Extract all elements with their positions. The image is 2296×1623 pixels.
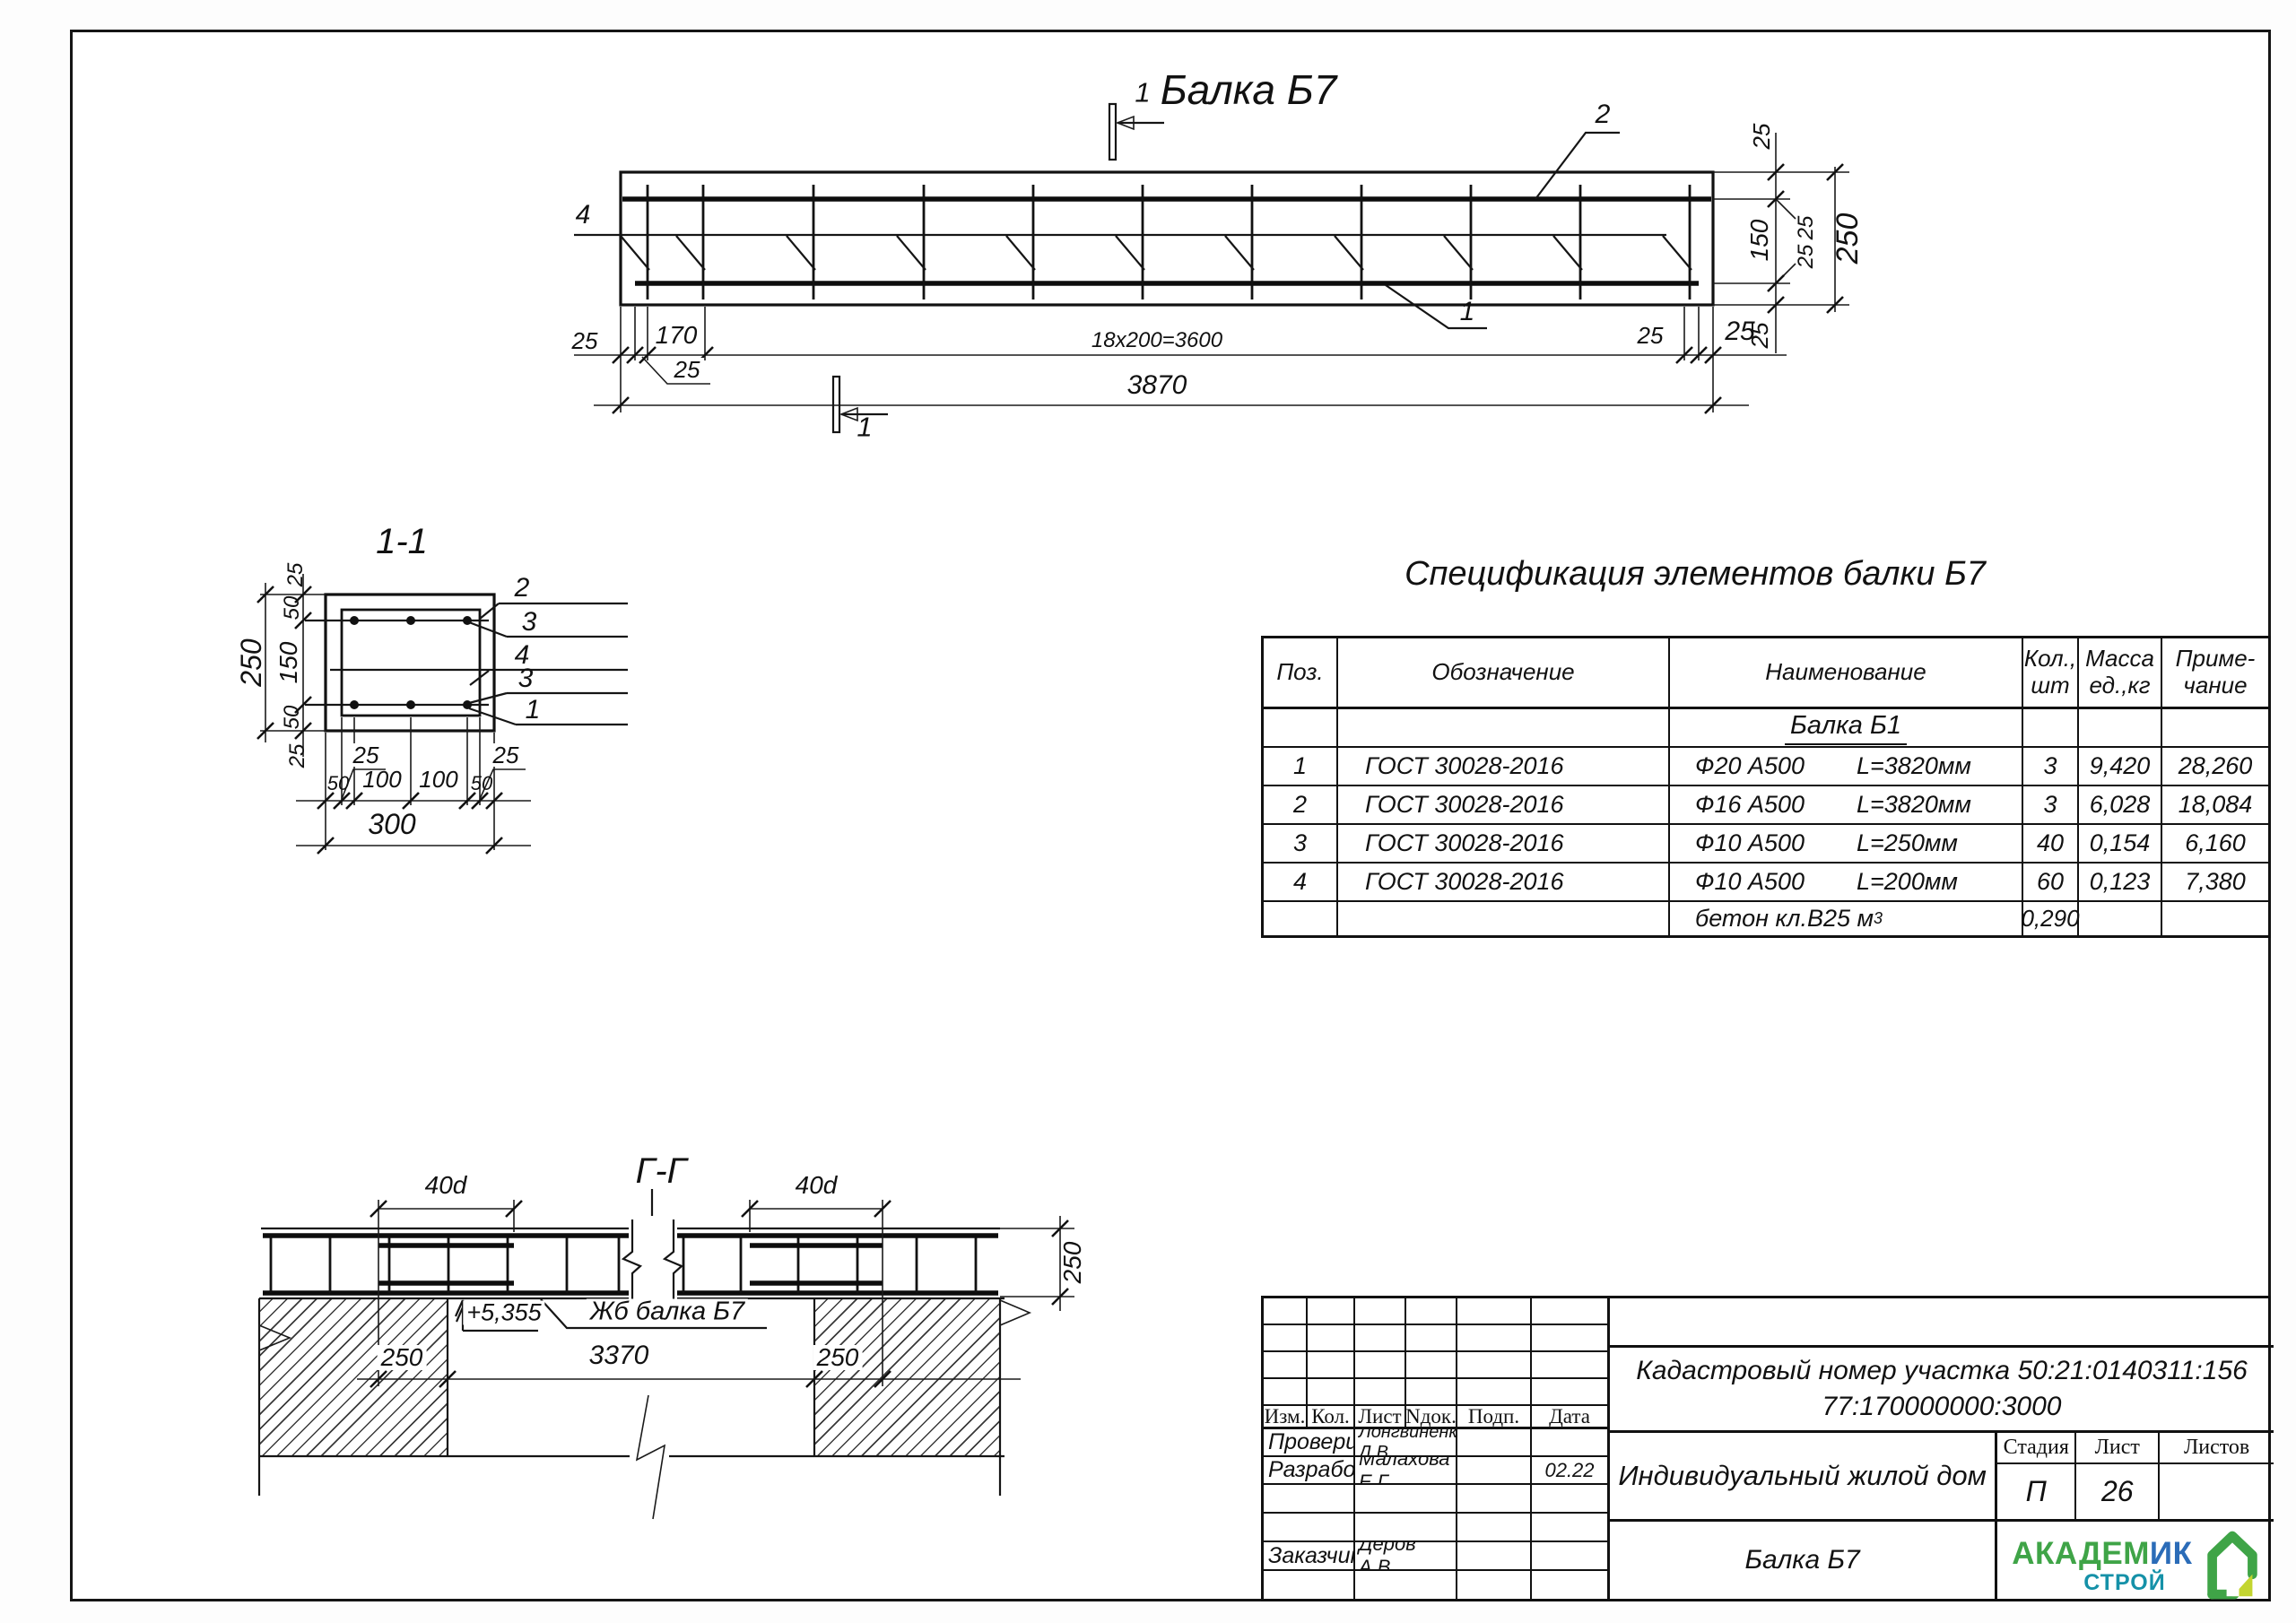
spec-cell xyxy=(1264,902,1338,935)
revision-grid: Изм. Кол. Лист Nдок. Подп. Дата Проверил… xyxy=(1264,1298,1610,1599)
spec-row-mass: 0,154 xyxy=(2079,825,2162,864)
header-list: Лист xyxy=(1355,1406,1406,1429)
stage-label: Стадия xyxy=(1997,1433,2076,1462)
beam-elevation-linework xyxy=(574,104,1849,432)
title-block: Изм. Кол. Лист Nдок. Подп. Дата Проверил… xyxy=(1261,1296,2271,1601)
elevation-title: Балка Б7 xyxy=(1161,69,1337,110)
spec-cell xyxy=(2023,709,2079,748)
spec-concrete-qty: 0,290 xyxy=(2023,902,2079,935)
rdim-25-above: 25 xyxy=(1750,124,1773,150)
spec-row-pos: 2 xyxy=(1264,786,1338,825)
grid-cell xyxy=(1264,1379,1308,1406)
grid-cell xyxy=(1264,1485,1355,1514)
logo-house-icon xyxy=(2204,1529,2261,1601)
stage-sheet-block: Стадия Лист Листов П 26 xyxy=(1997,1433,2274,1519)
grid-cell xyxy=(1406,1352,1457,1379)
s11-50-bot: 50 xyxy=(282,706,303,730)
s11-pos2: 2 xyxy=(515,575,530,602)
cadastral-line2: 77:170000000:3000 xyxy=(1822,1389,2062,1426)
section-mark-bottom-label: 1 xyxy=(857,413,872,441)
s11-pos3a: 3 xyxy=(522,609,537,636)
grid-cell xyxy=(1457,1325,1532,1352)
grid-cell xyxy=(1457,1379,1532,1406)
grid-cell xyxy=(1406,1298,1457,1325)
grid-cell xyxy=(1264,1298,1308,1325)
spec-row-mass: 0,123 xyxy=(2079,864,2162,902)
spec-row-pos: 1 xyxy=(1264,748,1338,786)
rdim-25-bot: 25 xyxy=(1796,245,1817,269)
spec-cell xyxy=(1264,709,1338,748)
spec-cell xyxy=(2162,709,2268,748)
grid-cell xyxy=(1264,1352,1308,1379)
drawing-sheet: Балка Б7 1 1 2 4 1 25 170 25 18x200=3600… xyxy=(0,0,2296,1623)
cadastral-cell: Кадастровый номер участка 50:21:0140311:… xyxy=(1610,1348,2274,1433)
s11-25-bot: 25 xyxy=(287,744,309,768)
spec-row-note: 18,084 xyxy=(2162,786,2268,825)
grid-cell xyxy=(1532,1514,1607,1542)
pos2-label: 2 xyxy=(1596,101,1611,128)
spec-row-name: Ф20 А500L=3820мм xyxy=(1670,748,2023,786)
s11-50-top: 50 xyxy=(282,596,303,621)
grid-cell xyxy=(1355,1325,1406,1352)
dim-25-right: 25 xyxy=(1638,324,1664,347)
s11-b50-right: 50 xyxy=(471,774,492,794)
s11-250: 250 xyxy=(237,638,265,686)
spec-row-designation: ГОСТ 30028-2016 xyxy=(1338,748,1670,786)
sheets-label: Листов xyxy=(2160,1433,2274,1462)
grid-cell xyxy=(1457,1514,1532,1542)
project-name-cell: Индивидуальный жилой дом xyxy=(1610,1433,1997,1519)
gg-250-side: 250 xyxy=(1060,1242,1085,1284)
rdim-150: 150 xyxy=(1747,220,1772,262)
s11-150: 150 xyxy=(276,642,301,684)
spec-cell xyxy=(1338,709,1670,748)
grid-cell xyxy=(1308,1298,1355,1325)
gg-3370: 3370 xyxy=(586,1342,653,1369)
grid-cell xyxy=(1532,1542,1607,1571)
grid-cell xyxy=(1532,1325,1607,1352)
spec-col-designation: Обозначение xyxy=(1338,638,1670,709)
s11-b25-left: 25 xyxy=(350,743,383,767)
s11-pos1: 1 xyxy=(526,697,541,724)
cadastral-line1: Кадастровый номер участка 50:21:0140311:… xyxy=(1636,1353,2248,1390)
grid-cell xyxy=(1264,1325,1308,1352)
grid-cell xyxy=(1532,1571,1607,1599)
grid-cell xyxy=(1457,1542,1532,1571)
stage-value: П xyxy=(1997,1464,2076,1519)
gg-40d-right: 40d xyxy=(796,1173,838,1198)
spec-cell xyxy=(2079,902,2162,935)
rdim-250: 250 xyxy=(1832,213,1863,265)
rdim-25-below: 25 xyxy=(1748,323,1771,349)
developed-date: 02.22 xyxy=(1532,1457,1607,1485)
grid-cell xyxy=(1308,1379,1355,1406)
spec-row-pos: 3 xyxy=(1264,825,1338,864)
logo-text-akademik: АКАДЕМИК xyxy=(2012,1536,2192,1572)
dim-3870: 3870 xyxy=(1127,372,1187,399)
grid-cell xyxy=(1355,1485,1457,1514)
empty-top-cell xyxy=(1610,1298,2274,1348)
checked-role: Проверил xyxy=(1264,1429,1355,1457)
rdim-25-top: 25 xyxy=(1796,216,1817,240)
gg-beam-label: Жб балка Б7 xyxy=(587,1299,748,1325)
grid-cell xyxy=(1532,1485,1607,1514)
s11-b100-right: 100 xyxy=(419,768,457,791)
gg-elevation-mark: +5,355 xyxy=(463,1301,544,1325)
developed-name: Малахова Е.Г. xyxy=(1355,1457,1457,1485)
grid-cell xyxy=(1355,1514,1457,1542)
customer-role: Заказчик xyxy=(1264,1542,1355,1571)
spec-row-name: Ф10 А500L=200мм xyxy=(1670,864,2023,902)
spec-col-name: Наименование xyxy=(1670,638,2023,709)
s11-b50-left: 50 xyxy=(327,774,349,794)
spec-row-mass: 9,420 xyxy=(2079,748,2162,786)
s11-300: 300 xyxy=(368,810,415,838)
s11-25-top: 25 xyxy=(285,563,307,587)
grid-cell xyxy=(1264,1571,1355,1599)
grid-cell xyxy=(1532,1298,1607,1325)
spec-row-qty: 3 xyxy=(2023,786,2079,825)
spec-concrete-name: бетон кл.В25 м3 xyxy=(1670,902,2023,935)
logo-text-stroy: СТРОЙ xyxy=(2083,1570,2165,1596)
grid-cell xyxy=(1532,1352,1607,1379)
dim-25-leader: 25 xyxy=(671,358,704,381)
grid-cell xyxy=(1308,1352,1355,1379)
section-1-1-linework xyxy=(257,574,628,854)
dim-170: 170 xyxy=(656,323,698,348)
dim-spacing: 18x200=3600 xyxy=(1091,330,1222,352)
dim-25-left: 25 xyxy=(572,329,598,352)
spec-cell xyxy=(2162,902,2268,935)
header-podp: Подп. xyxy=(1457,1406,1532,1429)
pos4-label: 4 xyxy=(576,202,591,229)
spec-group-row: Балка Б1 xyxy=(1670,709,2023,748)
grid-cell xyxy=(1355,1379,1406,1406)
s11-b100-left: 100 xyxy=(362,768,401,791)
spec-col-qty: Кол.,шт xyxy=(2023,638,2079,709)
section-mark-top-label: 1 xyxy=(1135,79,1150,107)
grid-cell xyxy=(1406,1325,1457,1352)
grid-cell xyxy=(1308,1325,1355,1352)
spec-cell xyxy=(2079,709,2162,748)
spec-row-note: 7,380 xyxy=(2162,864,2268,902)
spec-row-note: 6,160 xyxy=(2162,825,2268,864)
spec-row-name: Ф16 А500L=3820мм xyxy=(1670,786,2023,825)
grid-cell xyxy=(1532,1379,1607,1406)
spec-row-qty: 3 xyxy=(2023,748,2079,786)
s11-pos3b: 3 xyxy=(518,665,534,692)
spec-row-pos: 4 xyxy=(1264,864,1338,902)
company-logo: АКАДЕМИК СТРОЙ xyxy=(1997,1522,2274,1599)
spec-row-mass: 6,028 xyxy=(2079,786,2162,825)
pos1-label: 1 xyxy=(1460,299,1475,325)
gg-250-right: 250 xyxy=(813,1345,863,1370)
grid-cell xyxy=(1355,1571,1457,1599)
spec-title: Спецификация элементов балки Б7 xyxy=(1405,557,1986,591)
grid-cell xyxy=(1457,1352,1532,1379)
spec-cell xyxy=(1338,902,1670,935)
title-block-right: Кадастровый номер участка 50:21:0140311:… xyxy=(1610,1298,2274,1599)
spec-row-qty: 60 xyxy=(2023,864,2079,902)
spec-row-qty: 40 xyxy=(2023,825,2079,864)
grid-cell xyxy=(1457,1571,1532,1599)
header-izm: Изм. xyxy=(1264,1406,1308,1429)
spec-col-pos: Поз. xyxy=(1264,638,1338,709)
gg-40d-left: 40d xyxy=(425,1173,467,1198)
grid-cell xyxy=(1355,1298,1406,1325)
grid-cell xyxy=(1532,1429,1607,1457)
section11-title: 1-1 xyxy=(376,524,428,560)
grid-cell xyxy=(1457,1429,1532,1457)
spec-row-designation: ГОСТ 30028-2016 xyxy=(1338,825,1670,864)
grid-cell xyxy=(1406,1379,1457,1406)
grid-cell xyxy=(1457,1298,1532,1325)
grid-cell xyxy=(1264,1514,1355,1542)
header-data: Дата xyxy=(1532,1406,1607,1429)
spec-row-name: Ф10 А500L=250мм xyxy=(1670,825,2023,864)
doc-title-cell: Балка Б7 xyxy=(1610,1522,1997,1599)
spec-row-designation: ГОСТ 30028-2016 xyxy=(1338,864,1670,902)
spec-row-designation: ГОСТ 30028-2016 xyxy=(1338,786,1670,825)
s11-b25-right: 25 xyxy=(490,743,523,767)
gg-250-left: 250 xyxy=(378,1345,427,1370)
spec-col-mass: Массаед.,кг xyxy=(2079,638,2162,709)
sheet-value: 26 xyxy=(2076,1464,2160,1519)
header-kol: Кол. xyxy=(1308,1406,1355,1429)
spec-row-note: 28,260 xyxy=(2162,748,2268,786)
grid-cell xyxy=(1355,1352,1406,1379)
sheets-value xyxy=(2160,1464,2274,1519)
header-ndok: Nдок. xyxy=(1406,1406,1457,1429)
developed-role: Разработал xyxy=(1264,1457,1355,1485)
checked-name: Лонгвиненко Д.В xyxy=(1355,1429,1457,1457)
grid-cell xyxy=(1457,1485,1532,1514)
customer-name: Деров А.В. xyxy=(1355,1542,1457,1571)
grid-cell xyxy=(1457,1457,1532,1485)
sheet-label: Лист xyxy=(2076,1433,2160,1462)
spec-col-note: Приме-чание xyxy=(2162,638,2268,709)
spec-table: Поз. Обозначение Наименование Кол.,шт Ма… xyxy=(1261,636,2271,938)
gg-title: Г-Г xyxy=(636,1153,687,1189)
